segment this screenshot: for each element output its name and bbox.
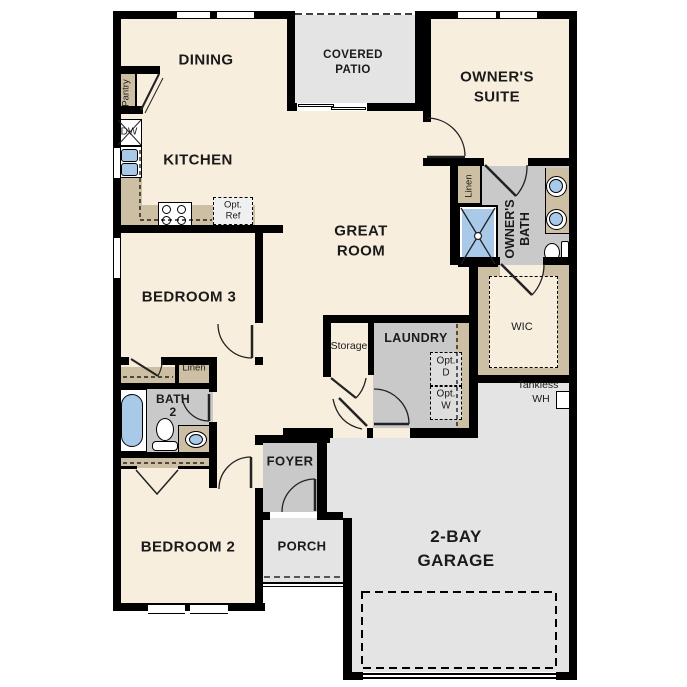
door-pantry [141,74,163,113]
room-label-bath-2: BATH [156,392,190,406]
room-label-dining: DINING [179,52,234,69]
room-label-owners-suite: OWNER'S [460,69,534,86]
label-opt-ref: Ref [226,211,241,222]
door-bedroom3-closet [131,359,162,376]
room-label-covered-patio: PATIO [335,64,370,76]
room-label-storage: Storage [331,340,368,352]
room-label-laundry: LAUNDRY [384,331,447,345]
label-pantry: Pantry [121,79,132,106]
room-label-foyer: FOYER [267,454,314,469]
room-label-garage: GARAGE [417,551,494,571]
door-front-entry [282,479,315,512]
door-bedroom-3 [218,324,252,358]
shower-glass-lines [461,208,495,264]
door-owners-suite [427,118,465,157]
door-bedroom-2 [219,457,251,489]
label-tankless-wh: Tankless [518,379,559,391]
label-opt-ref: Opt. [224,200,242,211]
room-label-bedroom-2: BEDROOM 2 [141,539,235,556]
label-dishwasher: DW [121,127,138,138]
room-label-bath-2: 2 [169,405,176,419]
label-opt-washer: Opt. [437,389,456,400]
door-wic [501,264,544,295]
label-tankless-wh: WH [532,393,550,405]
garage-door-swing-dashed [362,592,556,668]
room-label-covered-patio: COVERED [323,49,383,61]
room-label-great-room: GREAT [334,223,387,240]
room-label-great-room: ROOM [337,243,385,260]
door-storage [331,378,366,398]
label-opt-dryer: D [442,368,449,379]
floor-plan: DINING COVERED PATIO OWNER'S SUITE KITCH… [0,0,687,687]
label-opt-dryer: Opt. [437,356,456,367]
door-bedroom2-closet [136,470,178,494]
label-linen-owner: Linen [464,174,475,197]
label-linen-hall: Linen [182,363,205,374]
room-label-kitchen: KITCHEN [163,152,232,169]
room-label-garage: 2-BAY [430,527,481,547]
room-label-wic: WIC [511,321,532,333]
label-opt-washer: W [441,401,450,412]
door-garage-hall [333,398,367,429]
door-laundry [374,389,409,424]
door-owners-bath [485,165,527,196]
room-label-bedroom-3: BEDROOM 3 [142,289,236,306]
room-label-owners-bath: OWNER'S BATH [503,199,533,258]
room-label-porch: PORCH [278,539,327,554]
room-label-owners-suite: SUITE [474,89,520,106]
